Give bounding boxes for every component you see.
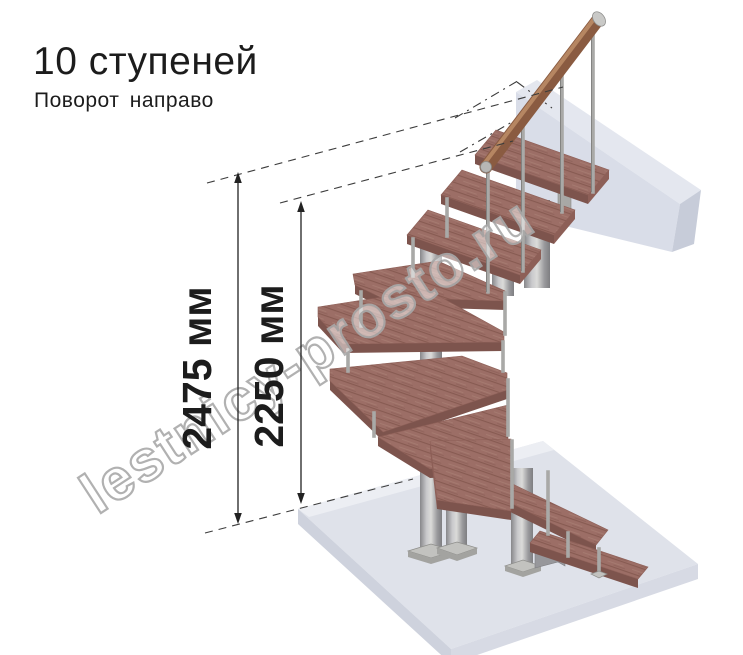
title-block: 10 ступеней Поворот направо (33, 42, 258, 113)
dimension-label-total: 2475 мм (174, 286, 220, 449)
stair-tread-3 (430, 439, 511, 520)
page-subtitle: Поворот направо (34, 89, 258, 113)
handrail-ferrule (481, 162, 492, 173)
baluster-rod (561, 67, 563, 212)
baluster-rod (592, 26, 594, 192)
page-title: 10 ступеней (33, 42, 258, 83)
staircase-diagram: lestnicy-prosto.ru 2475 мм 2250 мм 10 ст… (0, 0, 743, 655)
dimension-label-upper: 2250 мм (246, 284, 292, 447)
